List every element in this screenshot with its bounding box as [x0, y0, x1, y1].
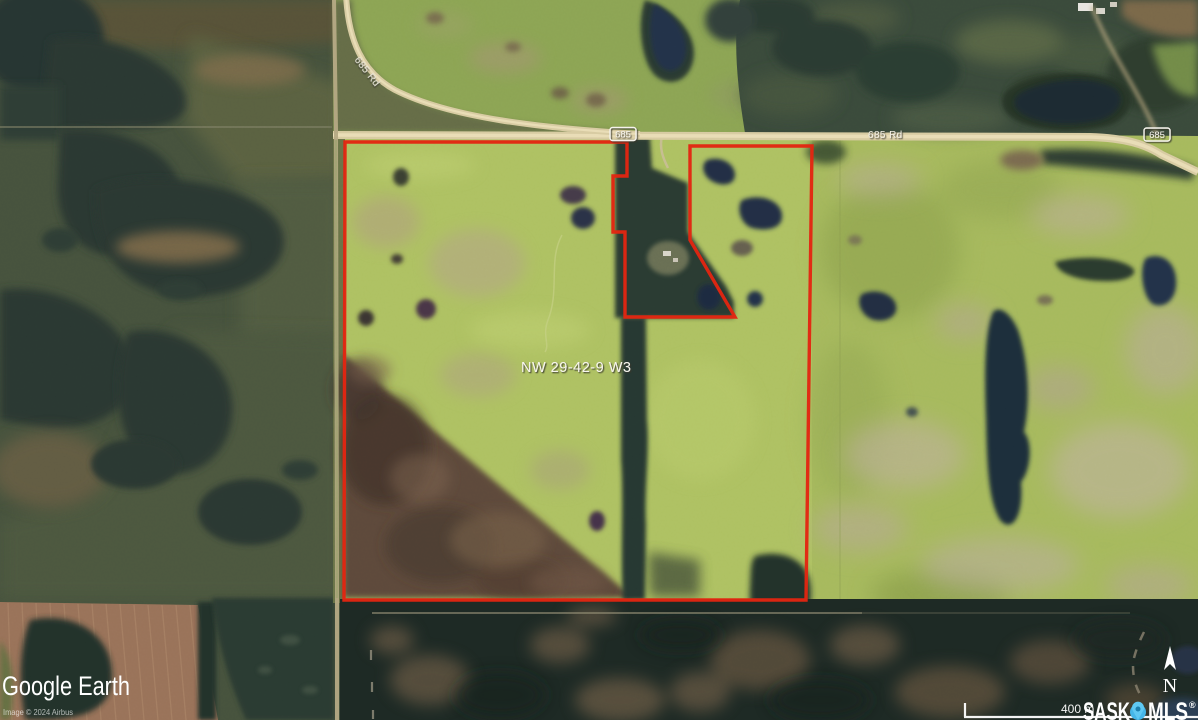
- svg-text:685: 685: [615, 130, 631, 141]
- svg-text:N: N: [1163, 675, 1177, 697]
- svg-text:®: ®: [1189, 700, 1196, 710]
- svg-text:685: 685: [1149, 130, 1165, 141]
- svg-text:NW 29-42-9 W3: NW 29-42-9 W3: [521, 360, 631, 376]
- svg-text:685 Rd: 685 Rd: [868, 130, 903, 141]
- svg-text:Image © 2024 Airbus: Image © 2024 Airbus: [3, 707, 73, 717]
- svg-text:Google Earth: Google Earth: [2, 671, 130, 701]
- svg-text:SASK: SASK: [1083, 698, 1130, 720]
- svg-text:MLS: MLS: [1148, 698, 1188, 720]
